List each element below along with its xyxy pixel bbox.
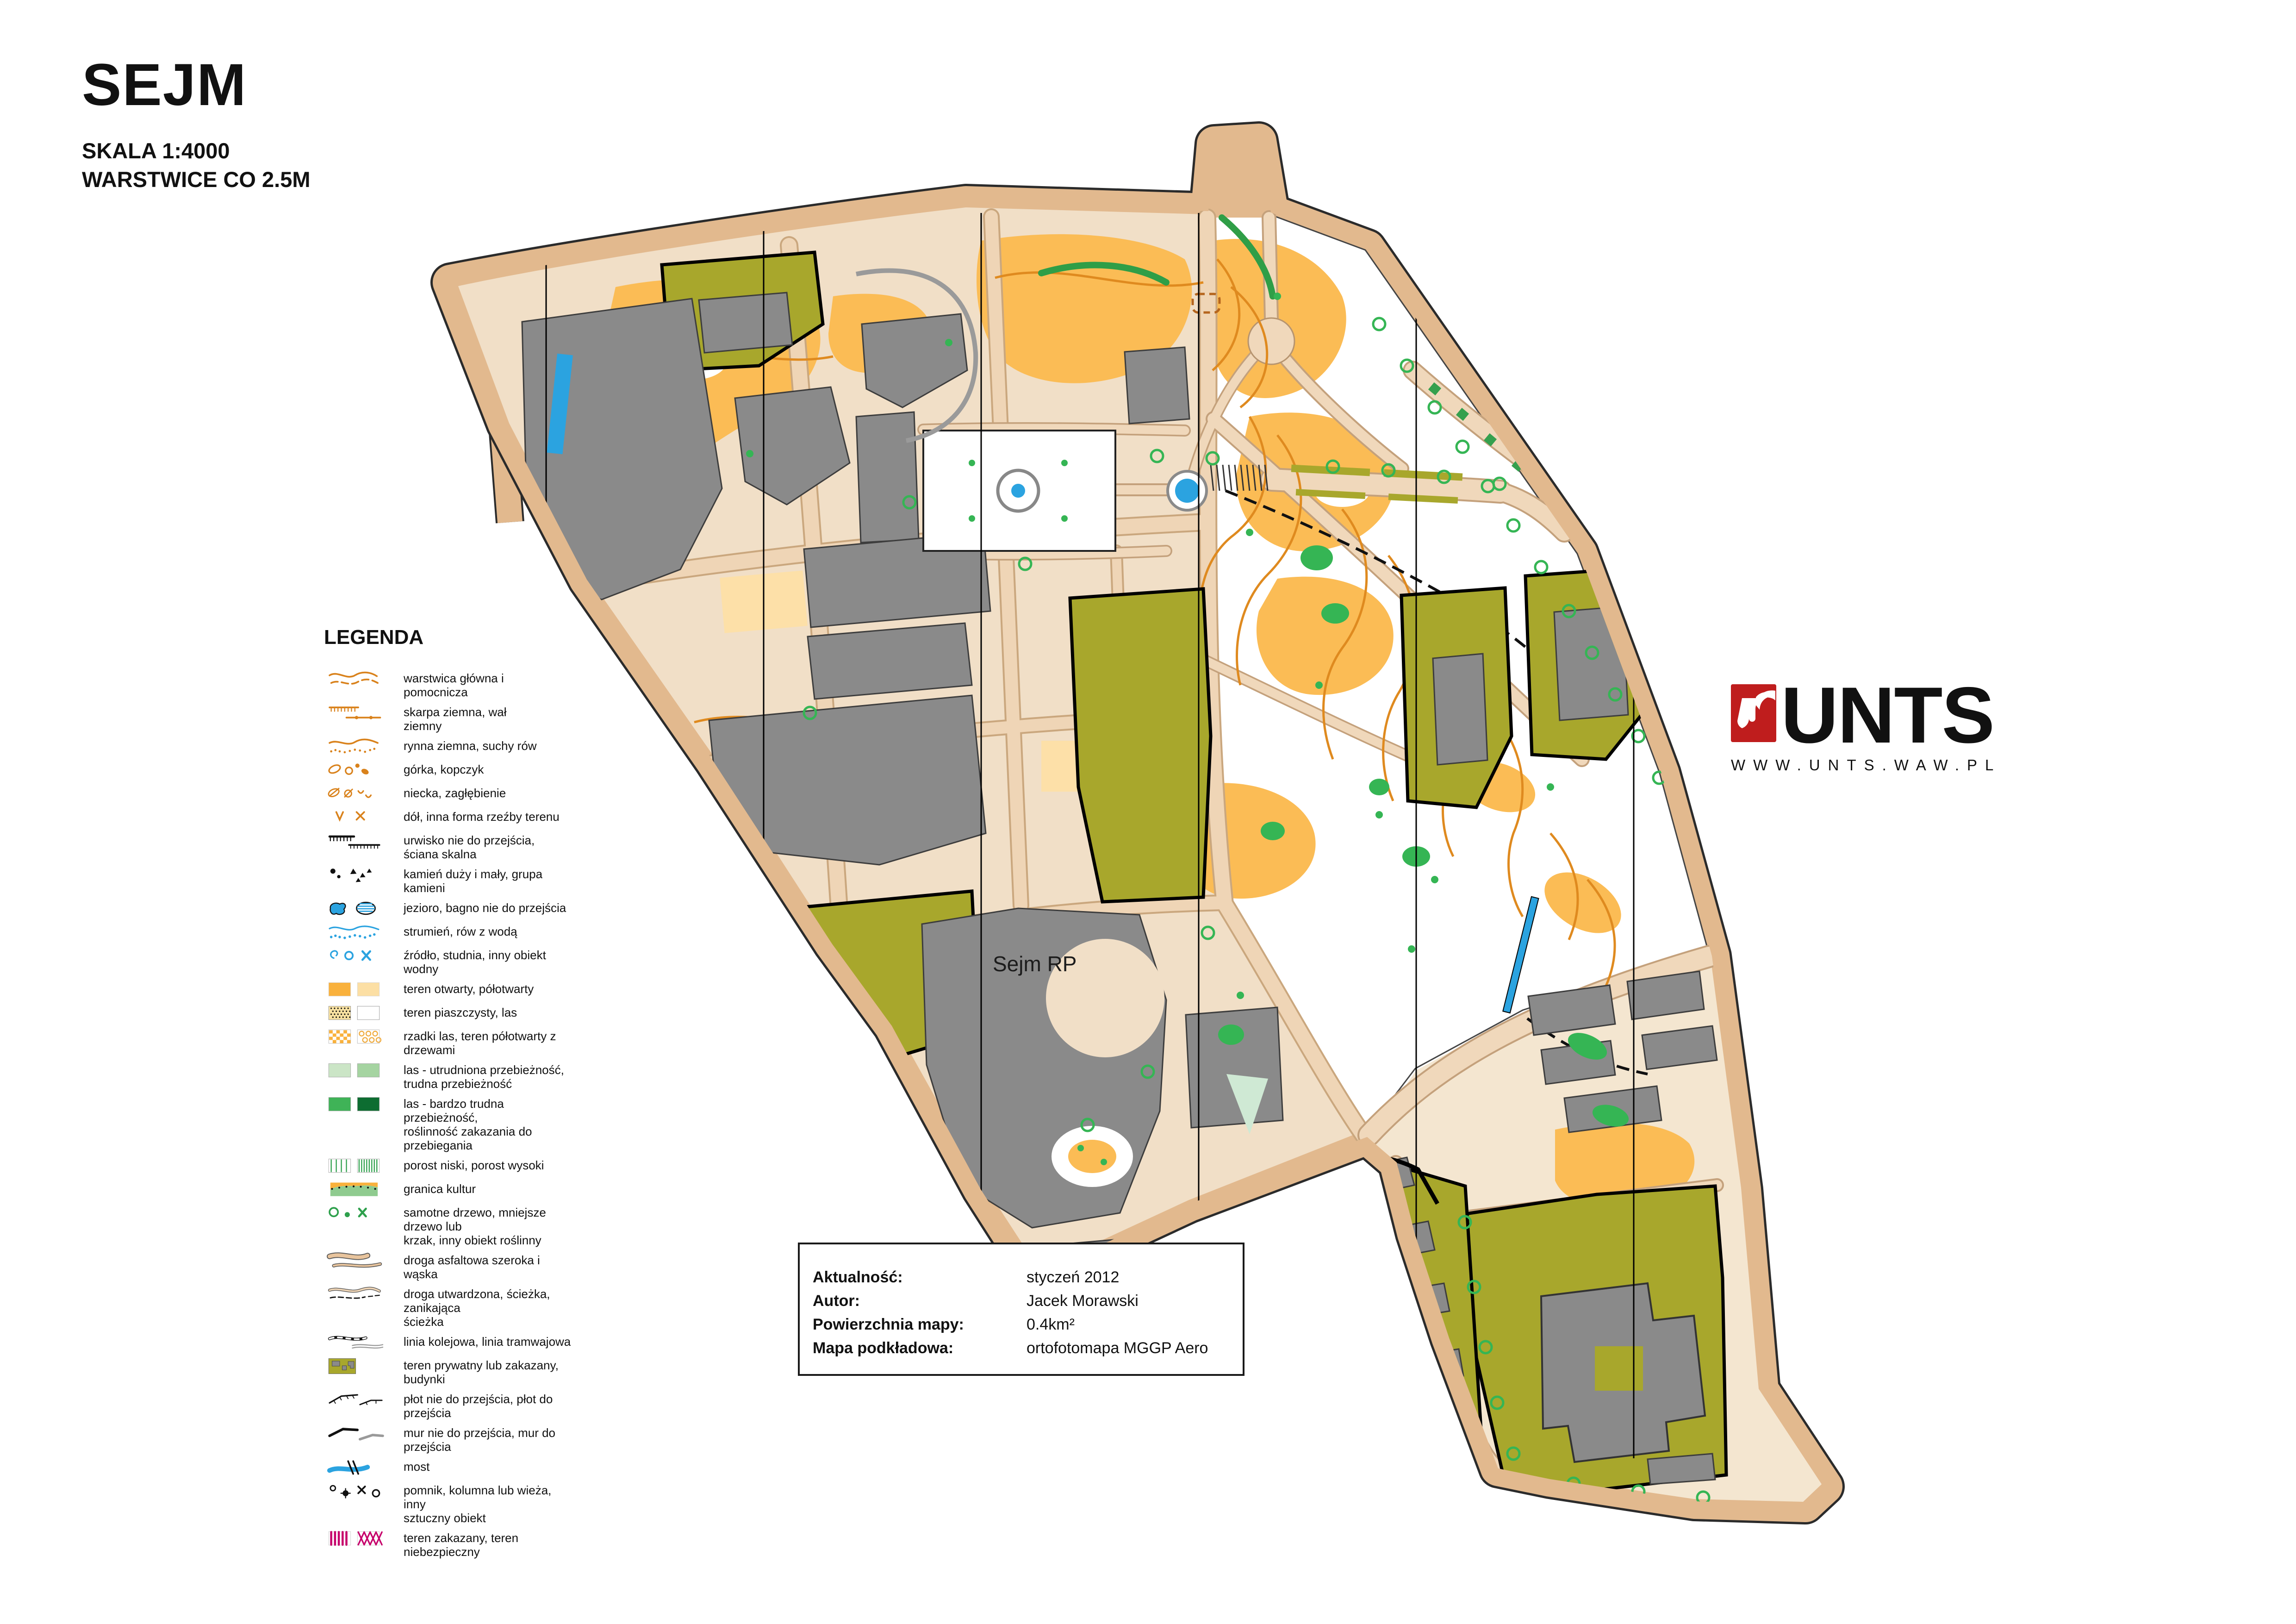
legend-icon-road-asphalt xyxy=(324,1251,393,1271)
legend-item: granica kultur xyxy=(324,1180,574,1199)
legend-item-label: źródło, studnia, inny obiekt wodny xyxy=(404,946,574,976)
legend-item: teren zakazany, teren niebezpieczny xyxy=(324,1529,574,1559)
legend-icon-fence xyxy=(324,1390,393,1410)
legend-item: urwisko nie do przejścia, ściana skalna xyxy=(324,831,574,861)
legend-item-label: samotne drzewo, mniejsze drzewo lub krza… xyxy=(404,1204,574,1247)
legend-item: rzadki las, teren półotwarty z drzewami xyxy=(324,1027,574,1057)
legend-item: skarpa ziemna, wał ziemny xyxy=(324,703,574,733)
legend-icon-culture-boundary xyxy=(324,1180,393,1199)
info-value: styczeń 2012 xyxy=(1027,1268,1119,1287)
legend-item: warstwica główna i pomocnicza xyxy=(324,669,574,699)
palace-garden xyxy=(923,431,1115,551)
legend-item-label: górka, kopczyk xyxy=(404,761,484,776)
legend-icon-path xyxy=(324,1285,393,1305)
legend-item-label: las - bardzo trudna przebieżność, roślin… xyxy=(404,1095,574,1152)
legend-icon-earth-bank xyxy=(324,703,393,723)
legend-item-label: las - utrudniona przebieżność, trudna pr… xyxy=(404,1061,564,1091)
legend-item-label: pomnik, kolumna lub wieża, inny sztuczny… xyxy=(404,1481,574,1525)
legend-icon-private xyxy=(324,1356,393,1376)
legend-item-label: teren otwarty, półotwarty xyxy=(404,980,534,996)
legend-icon-stones xyxy=(324,865,393,885)
legend-icon-bridge xyxy=(324,1458,393,1477)
legend-icon-water-point xyxy=(324,946,393,966)
info-row: Mapa podkładowa: ortofotomapa MGGP Aero xyxy=(813,1339,1243,1357)
page-root: { "header": { "title": "SEJM", "scale_li… xyxy=(0,0,2296,1624)
info-label: Aktualność: xyxy=(813,1268,1027,1287)
legend-item-label: linia kolejowa, linia tramwajowa xyxy=(404,1333,571,1349)
info-label: Powierzchnia mapy: xyxy=(813,1316,1027,1334)
legend-item: górka, kopczyk xyxy=(324,761,574,780)
info-value: 0.4km² xyxy=(1027,1316,1075,1334)
legend-item: mur nie do przejścia, mur do przejścia xyxy=(324,1424,574,1454)
legend-item: kamień duży i mały, grupa kamieni xyxy=(324,865,574,895)
legend-icon-pit xyxy=(324,808,393,827)
legend-heading: LEGENDA xyxy=(324,626,574,649)
legend-item: teren otwarty, półotwarty xyxy=(324,980,574,999)
legend-item: droga utwardzona, ścieżka, zanikająca śc… xyxy=(324,1285,574,1329)
legend-icon-cliff xyxy=(324,831,393,851)
legend-item: niecka, zagłębienie xyxy=(324,784,574,804)
legend-icon-earth-gully xyxy=(324,737,393,756)
legend-item-label: mur nie do przejścia, mur do przejścia xyxy=(404,1424,574,1454)
legend-item: porost niski, porost wysoki xyxy=(324,1156,574,1176)
legend-icon-stream xyxy=(324,923,393,942)
legend-item-label: dół, inna forma rzeźby terenu xyxy=(404,808,560,824)
legend-icon-depression xyxy=(324,784,393,804)
title-block: SEJM SKALA 1:4000 WARSTWICE CO 2.5M xyxy=(82,51,311,194)
contour-interval: WARSTWICE CO 2.5M xyxy=(82,165,311,194)
legend: LEGENDA warstwica główna i pomocniczaska… xyxy=(324,626,574,1563)
legend-icon-forest-walk xyxy=(324,1061,393,1081)
legend-item: droga asfaltowa szeroka i wąska xyxy=(324,1251,574,1281)
legend-icon-open-land xyxy=(324,980,393,999)
logo-website: WWW.UNTS.WAW.PL xyxy=(1731,756,2046,774)
legend-item-label: most xyxy=(404,1458,429,1474)
legend-item-label: teren zakazany, teren niebezpieczny xyxy=(404,1529,574,1559)
legend-item: linia kolejowa, linia tramwajowa xyxy=(324,1333,574,1352)
legend-item: rynna ziemna, suchy rów xyxy=(324,737,574,756)
page-title: SEJM xyxy=(82,51,311,119)
legend-icon-knoll xyxy=(324,761,393,780)
info-value: Jacek Morawski xyxy=(1027,1292,1139,1310)
info-row: Aktualność: styczeń 2012 xyxy=(813,1268,1243,1287)
legend-icon-rough-open xyxy=(324,1027,393,1047)
sejm-label: Sejm RP xyxy=(993,952,1076,976)
legend-item-label: warstwica główna i pomocnicza xyxy=(404,669,504,699)
logo-text: UNTS xyxy=(1781,684,1994,746)
legend-item: samotne drzewo, mniejsze drzewo lub krza… xyxy=(324,1204,574,1247)
legend-icon-contours xyxy=(324,669,393,689)
legend-item: teren piaszczysty, las xyxy=(324,1004,574,1023)
info-label: Autor: xyxy=(813,1292,1027,1310)
legend-icon-forbidden xyxy=(324,1529,393,1549)
legend-icon-forest-fight xyxy=(324,1095,393,1114)
legend-icon-undergrowth xyxy=(324,1156,393,1176)
legend-item-label: strumień, rów z wodą xyxy=(404,923,517,938)
map-scale: SKALA 1:4000 xyxy=(82,137,311,165)
legend-item-label: droga asfaltowa szeroka i wąska xyxy=(404,1251,574,1281)
legend-item: dół, inna forma rzeźby terenu xyxy=(324,808,574,827)
info-label: Mapa podkładowa: xyxy=(813,1339,1027,1357)
legend-item: źródło, studnia, inny obiekt wodny xyxy=(324,946,574,976)
legend-item-label: płot nie do przejścia, płot do przejścia xyxy=(404,1390,574,1420)
legend-item-label: skarpa ziemna, wał ziemny xyxy=(404,703,507,733)
legend-item: jezioro, bagno nie do przejścia xyxy=(324,899,574,918)
legend-item-label: rynna ziemna, suchy rów xyxy=(404,737,537,753)
legend-item: pomnik, kolumna lub wieża, inny sztuczny… xyxy=(324,1481,574,1525)
legend-item-label: teren prywatny lub zakazany, budynki xyxy=(404,1356,574,1386)
legend-item-label: porost niski, porost wysoki xyxy=(404,1156,544,1172)
legend-item-label: droga utwardzona, ścieżka, zanikająca śc… xyxy=(404,1285,574,1329)
legend-item: strumień, rów z wodą xyxy=(324,923,574,942)
legend-item-label: teren piaszczysty, las xyxy=(404,1004,517,1019)
info-value: ortofotomapa MGGP Aero xyxy=(1027,1339,1208,1357)
legend-item-label: jezioro, bagno nie do przejścia xyxy=(404,899,566,915)
legend-item-label: niecka, zagłębienie xyxy=(404,784,506,800)
legend-item-label: rzadki las, teren półotwarty z drzewami xyxy=(404,1027,574,1057)
legend-icon-railway xyxy=(324,1333,393,1352)
legend-item: las - bardzo trudna przebieżność, roślin… xyxy=(324,1095,574,1152)
unts-logo-mark-icon xyxy=(1731,684,1776,742)
legend-item-label: kamień duży i mały, grupa kamieni xyxy=(404,865,542,895)
legend-icon-monument xyxy=(324,1481,393,1501)
legend-icon-wall xyxy=(324,1424,393,1443)
info-row: Powierzchnia mapy: 0.4km² xyxy=(813,1316,1243,1334)
info-box: Aktualność: styczeń 2012 Autor: Jacek Mo… xyxy=(798,1243,1244,1376)
legend-item: las - utrudniona przebieżność, trudna pr… xyxy=(324,1061,574,1091)
legend-items: warstwica główna i pomocniczaskarpa ziem… xyxy=(324,669,574,1559)
legend-item-label: urwisko nie do przejścia, ściana skalna xyxy=(404,831,535,861)
legend-item: teren prywatny lub zakazany, budynki xyxy=(324,1356,574,1386)
legend-item-label: granica kultur xyxy=(404,1180,476,1196)
info-row: Autor: Jacek Morawski xyxy=(813,1292,1243,1310)
legend-icon-tree xyxy=(324,1204,393,1223)
unts-logo: UNTS WWW.UNTS.WAW.PL xyxy=(1731,684,2046,774)
legend-item: płot nie do przejścia, płot do przejścia xyxy=(324,1390,574,1420)
legend-icon-sand xyxy=(324,1004,393,1023)
legend-item: most xyxy=(324,1458,574,1477)
legend-icon-lake xyxy=(324,899,393,918)
